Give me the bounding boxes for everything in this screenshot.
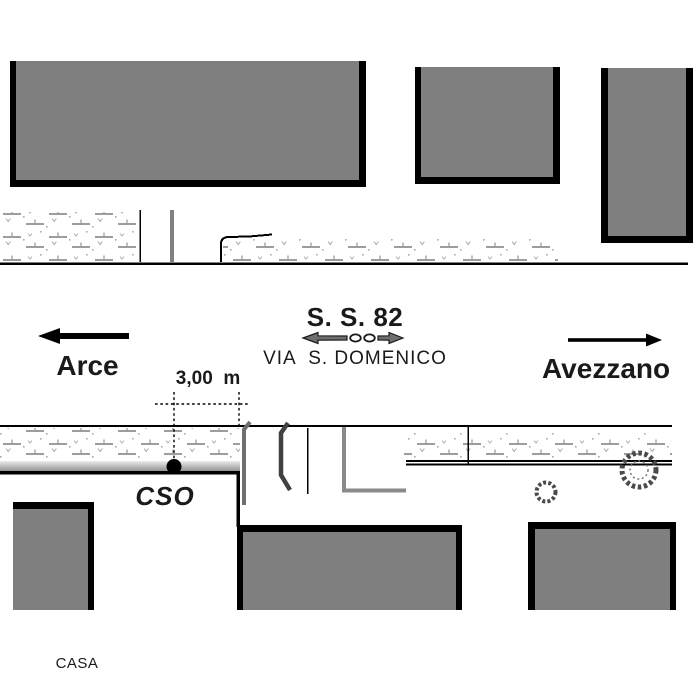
curb-shading [0, 461, 240, 472]
house-name-label: CASA CASTELLUCCI [10, 621, 144, 700]
house-name-line1: CASA [10, 655, 144, 672]
arrow-left-icon [34, 325, 134, 347]
street-name-label: VIA S. DOMENICO [258, 348, 452, 370]
shrub-icon [537, 483, 556, 502]
destination-left-label: Arce [40, 350, 135, 382]
arrow-right-icon [563, 330, 665, 350]
vegetation-hatch-pattern [0, 428, 240, 461]
shrub-icon [622, 453, 656, 487]
destination-right-label: Avezzano [542, 353, 667, 385]
vegetation-hatch-pattern [404, 432, 672, 458]
driveway-curb [344, 427, 406, 491]
access-label: CSO [132, 481, 198, 512]
vegetation-hatch-pattern [2, 212, 138, 262]
driveway-curb [244, 422, 250, 505]
site-plan-drawing: S. S. 82 VIA S. DOMENICO Arce Avezzano 3… [0, 0, 700, 700]
reference-point-dot [167, 459, 182, 474]
driveway-curb [281, 423, 290, 490]
vegetation-hatch-pattern [223, 239, 558, 262]
route-number-label: S. S. 82 [302, 302, 408, 333]
curb-corner-lower [0, 473, 238, 528]
dimension-value-label: 3,00 m [168, 368, 248, 390]
